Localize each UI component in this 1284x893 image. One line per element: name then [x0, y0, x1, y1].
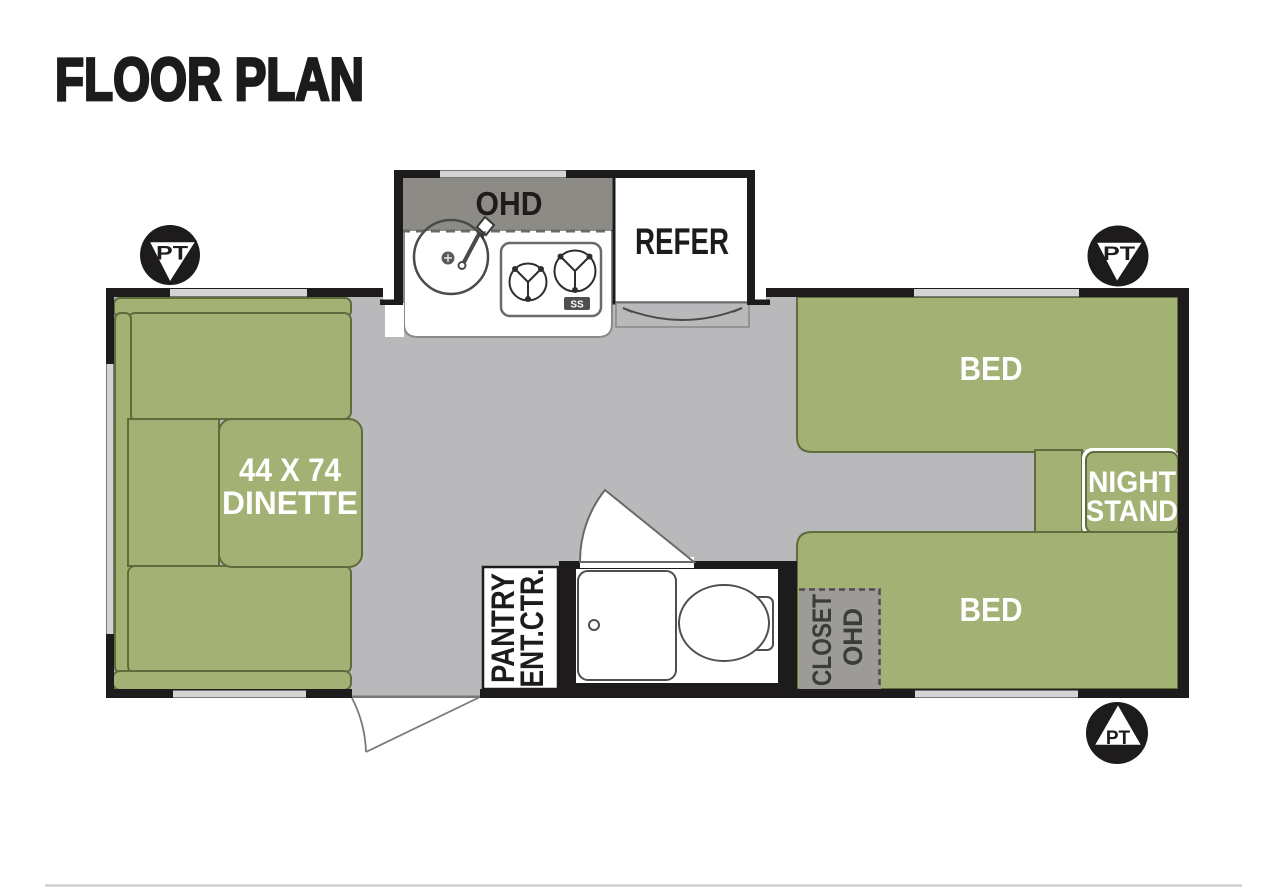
svg-text:FLOOR PLAN: FLOOR PLAN: [55, 46, 364, 113]
svg-text:BED: BED: [960, 591, 1023, 628]
svg-text:PT: PT: [156, 243, 188, 265]
svg-text:CLOSET: CLOSET: [807, 594, 837, 686]
svg-text:SS: SS: [570, 300, 584, 311]
svg-text:BED: BED: [960, 350, 1023, 387]
svg-text:ENT.CTR.: ENT.CTR.: [514, 569, 550, 688]
svg-text:DINETTE: DINETTE: [222, 485, 358, 521]
svg-text:44 X 74: 44 X 74: [239, 452, 341, 488]
svg-text:PT: PT: [1106, 728, 1131, 749]
svg-text:OHD: OHD: [838, 608, 868, 666]
svg-text:REFER: REFER: [635, 221, 729, 262]
svg-text:STAND: STAND: [1086, 495, 1178, 528]
svg-text:PT: PT: [1103, 243, 1135, 265]
